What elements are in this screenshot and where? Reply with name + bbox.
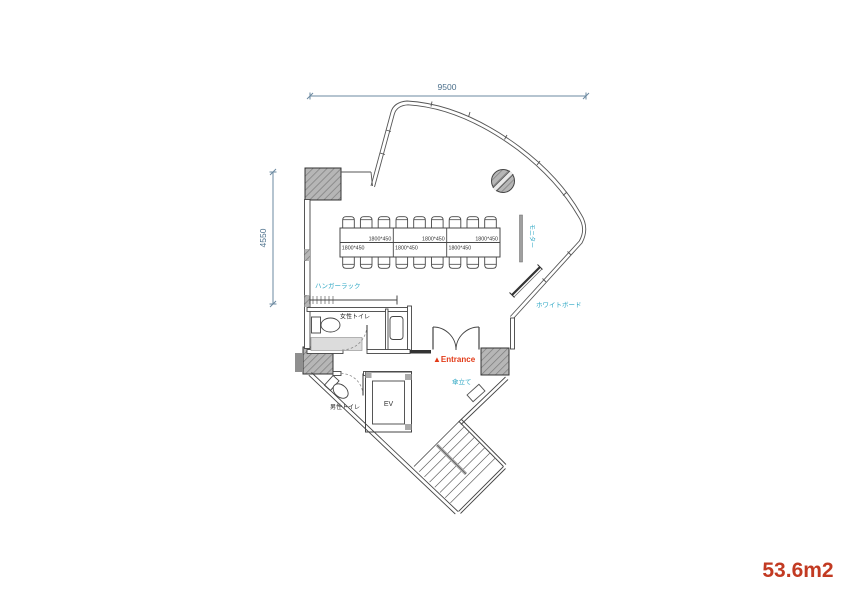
- table-label: 1800*450: [449, 246, 472, 252]
- monitor: [520, 215, 523, 262]
- toilet-bowl: [321, 318, 340, 332]
- table-label: 1800*450: [395, 246, 418, 252]
- table-label: 1800*450: [475, 237, 498, 243]
- entrance-column: [481, 348, 509, 375]
- hanger-rack: [310, 296, 397, 305]
- dimension-width-label: 9500: [438, 82, 457, 92]
- table-label: 1800*450: [369, 237, 392, 243]
- meeting-tables: 1800*450 1800*450 1800*450 1800*450 1800…: [340, 228, 500, 257]
- entrance-side-wall: [410, 350, 431, 354]
- wall-fill-bottomleft: [295, 353, 303, 372]
- round-column: [492, 170, 515, 193]
- table-label: 1800*450: [342, 246, 365, 252]
- dimension-height: [270, 169, 277, 307]
- womens-toilet-room: [311, 317, 367, 351]
- corner-column-topleft: [305, 168, 341, 200]
- mens-toilet: [324, 374, 363, 402]
- floorplan-drawing: 9500 4550: [0, 0, 849, 600]
- glass-curtain-wall: [371, 101, 586, 319]
- toilet-tank: [312, 317, 321, 333]
- staircase: [414, 420, 506, 514]
- ev-label: EV: [384, 401, 394, 408]
- entrance-label: ▲Entrance: [433, 355, 476, 364]
- whiteboard-label: ホワイトボード: [536, 301, 582, 309]
- floorplan-page: 9500 4550: [0, 0, 849, 600]
- chair-row-top: [343, 217, 497, 228]
- dimension-height-label: 4550: [258, 228, 268, 247]
- dimension-width: [307, 93, 589, 100]
- area-label: 53.6m2: [762, 559, 833, 582]
- shaft-fixture: [390, 317, 403, 340]
- monitor-label: モニター: [528, 224, 536, 248]
- toilet-counter: [311, 338, 362, 351]
- right-wall: [511, 318, 515, 349]
- umbrella-stand-label: 傘立て: [452, 377, 472, 386]
- entrance-doors: [433, 327, 479, 350]
- chair-row-bottom: [343, 258, 497, 269]
- hanger-rack-label: ハンガーラック: [315, 281, 361, 290]
- womens-toilet-label: 女性トイレ: [340, 313, 370, 321]
- table-label: 1800*450: [422, 237, 445, 243]
